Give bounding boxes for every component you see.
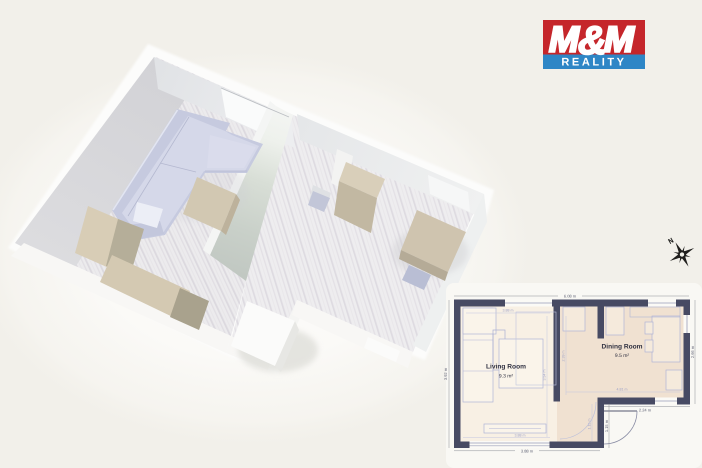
svg-text:3.88 m: 3.88 m xyxy=(515,434,526,438)
svg-text:Dining Room: Dining Room xyxy=(601,344,642,351)
svg-text:3.88 m: 3.88 m xyxy=(503,309,514,313)
svg-text:6.08 m: 6.08 m xyxy=(564,294,577,299)
svg-text:9.5 m²: 9.5 m² xyxy=(615,353,630,359)
svg-text:M: M xyxy=(604,19,635,60)
svg-text:REALITY: REALITY xyxy=(561,57,626,69)
svg-text:9.3 m²: 9.3 m² xyxy=(499,374,514,380)
svg-text:2.39 m: 2.39 m xyxy=(562,351,566,362)
svg-text:Living Room: Living Room xyxy=(486,364,526,371)
svg-text:1.15 m: 1.15 m xyxy=(604,419,609,432)
svg-text:2.66 m: 2.66 m xyxy=(690,345,695,358)
svg-text:4.81 m: 4.81 m xyxy=(617,388,628,392)
svg-text:3.88 m: 3.88 m xyxy=(521,449,534,454)
svg-text:1.15 m: 1.15 m xyxy=(588,419,592,430)
svg-text:2.24 m: 2.24 m xyxy=(639,408,652,413)
svg-text:3.54 m: 3.54 m xyxy=(543,370,547,381)
svg-text:3.92 m: 3.92 m xyxy=(443,367,448,380)
svg-text:M: M xyxy=(549,19,580,60)
